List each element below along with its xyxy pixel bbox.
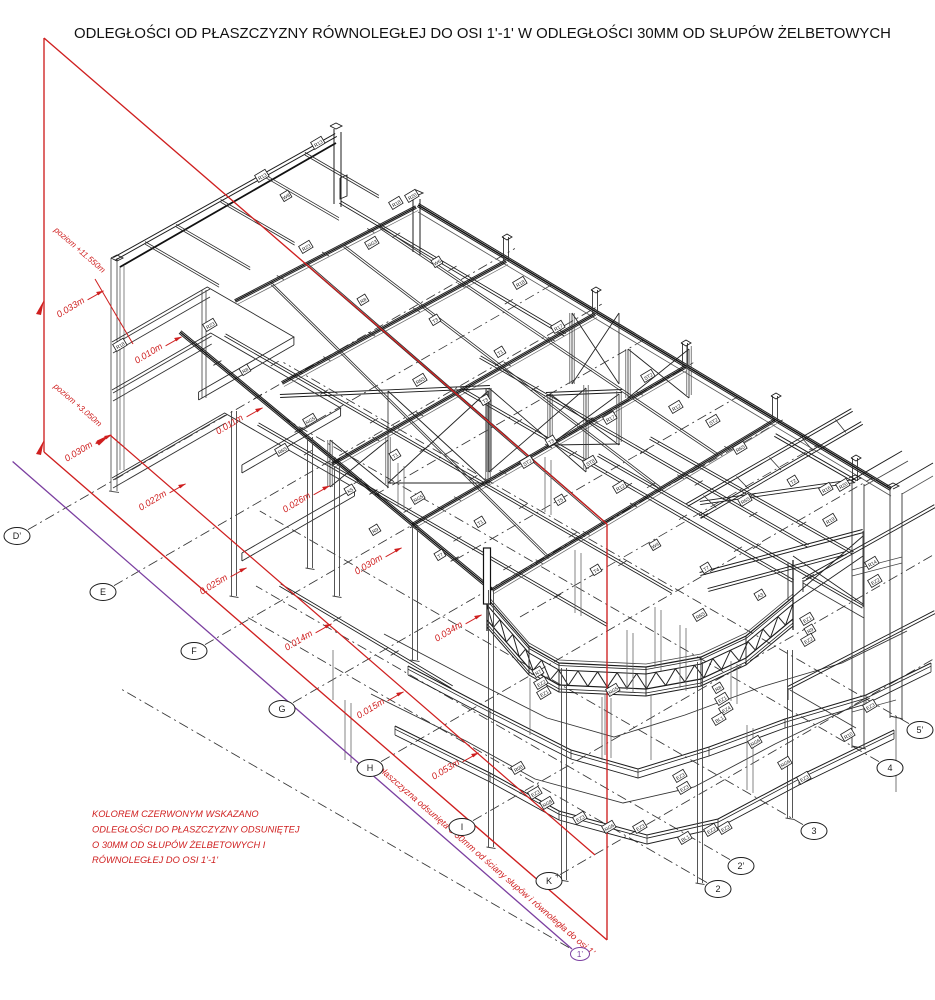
svg-text:ODLEGŁOŚCI DO PŁASZCZYZNY ODSU: ODLEGŁOŚCI DO PŁASZCZYZNY ODSUNIĘTEJ xyxy=(92,823,300,834)
svg-text:I: I xyxy=(461,822,464,832)
svg-text:D’: D’ xyxy=(13,531,22,541)
svg-text:5’: 5’ xyxy=(916,725,923,735)
svg-text:4: 4 xyxy=(887,763,892,773)
svg-text:F: F xyxy=(191,646,197,656)
svg-text:K: K xyxy=(546,876,552,886)
svg-text:RÓWNOLEGŁEJ DO OSI 1'-1': RÓWNOLEGŁEJ DO OSI 1'-1' xyxy=(92,855,219,865)
svg-text:G: G xyxy=(278,704,285,714)
svg-text:1’: 1’ xyxy=(577,950,583,959)
svg-text:+: + xyxy=(555,871,560,880)
svg-text:ODLEGŁOŚCI OD PŁASZCZYZNY RÓWN: ODLEGŁOŚCI OD PŁASZCZYZNY RÓWNOLEGŁEJ DO… xyxy=(74,24,891,42)
svg-text:2: 2 xyxy=(715,884,720,894)
svg-text:2’: 2’ xyxy=(737,861,744,871)
svg-text:E: E xyxy=(100,587,106,597)
svg-text:O 30MM OD SŁUPÓW ŻELBETOWYCH I: O 30MM OD SŁUPÓW ŻELBETOWYCH I xyxy=(92,840,266,850)
svg-text:KOLOREM CZERWONYM WSKAZANO: KOLOREM CZERWONYM WSKAZANO xyxy=(92,809,259,819)
svg-text:3: 3 xyxy=(811,826,816,836)
svg-text:H: H xyxy=(367,763,374,773)
